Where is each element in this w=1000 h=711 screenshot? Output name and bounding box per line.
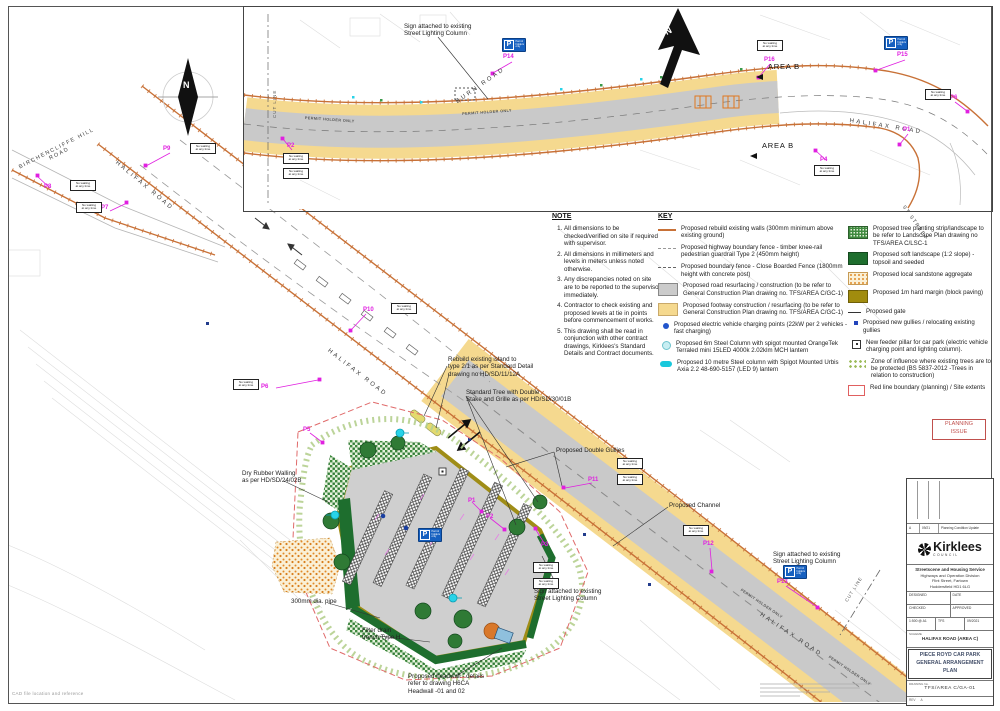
column-6m-swatch <box>662 341 671 350</box>
sandstone-area <box>272 538 340 594</box>
rev-label: REV <box>909 698 916 702</box>
annotation-walling: Dry Rubber Walling as per HD/SD/24/02B <box>242 470 302 485</box>
p-icon: P <box>886 38 896 48</box>
revision-row: A 09/21 Planning Condition Update <box>907 524 993 534</box>
red-line-swatch <box>848 385 865 396</box>
point-p10: P10 <box>363 307 374 314</box>
note-section: NOTE All dimensions to be checked/verifi… <box>552 213 662 361</box>
ev-charging-swatch <box>663 323 669 329</box>
ref-value: TFS <box>936 618 965 630</box>
note-item: Any discrepancies noted on site are to b… <box>564 276 662 299</box>
point-p14: P14 <box>503 54 514 61</box>
ev-charging-icon <box>404 526 409 531</box>
point-p9: P9 <box>163 146 170 153</box>
parking-sign: P Permit holders only <box>783 565 807 579</box>
file-reference-note: CAD file location and reference <box>12 691 84 696</box>
point-p11: P11 <box>588 477 598 484</box>
no-waiting-plate: No waiting at any time <box>814 165 840 176</box>
key-section: KEY Proposed rebuild existing walls (300… <box>658 213 992 401</box>
sandstone-swatch <box>848 272 868 285</box>
point-p4-inset: P4 <box>820 157 827 164</box>
key-column-left: KEY Proposed rebuild existing walls (300… <box>658 213 848 401</box>
area-b-arrow-icon <box>756 74 763 80</box>
annotation-headwall: Proposed headwall - details refer to dra… <box>408 673 484 695</box>
wall-swatch <box>658 229 676 231</box>
note-list: All dimensions to be checked/verified on… <box>552 225 662 358</box>
no-waiting-plate: No waiting at any time <box>70 180 96 191</box>
revision-area <box>907 479 993 524</box>
checked-label: CHECKED <box>907 605 951 617</box>
revision-date: 09/21 <box>920 524 939 533</box>
no-waiting-plate: No waiting at any time <box>617 474 643 485</box>
status-value: 09/2021 <box>965 618 993 630</box>
point-p6-inset: P6 <box>950 95 957 102</box>
rev-value: A <box>920 698 922 702</box>
no-waiting-plate: No waiting at any time <box>533 562 559 573</box>
gully-swatch <box>854 321 858 325</box>
address-block: Streetscene and Housing Service Highways… <box>907 565 993 592</box>
annotation-sign-right: Sign attached to existing Street Lightin… <box>773 551 840 566</box>
no-waiting-plate: No waiting at any time <box>391 303 417 314</box>
footway-swatch <box>658 303 678 316</box>
annotation-island: Rebuild existing island to type 2/1 as p… <box>448 356 533 378</box>
area-b-label: AREA B <box>762 142 794 151</box>
no-waiting-plate: No waiting at any time <box>76 202 102 213</box>
inset-area-b: AREA B <box>768 63 800 72</box>
no-waiting-plate: No waiting at any time <box>533 578 559 589</box>
compass-n-letter: N <box>183 80 190 91</box>
point-p12: P12 <box>703 541 714 548</box>
note-item: This drawing shall be read in conjunctio… <box>564 328 662 358</box>
point-p3: P3 <box>541 542 548 549</box>
kirklees-swirl-icon <box>918 543 931 556</box>
note-item: All dimensions in millimeters and levels… <box>564 251 662 274</box>
key-title: KEY <box>658 213 848 220</box>
zone-swatch <box>848 359 866 370</box>
feeder-pillar-swatch <box>852 340 861 349</box>
point-p16: P16 <box>764 57 775 64</box>
fields-row-2: CHECKED APPROVED <box>907 605 993 618</box>
fields-row-1: DESIGNED DATE <box>907 592 993 605</box>
note-item: All dimensions to be checked/verified on… <box>564 225 662 248</box>
scheme-value: HALIFAX ROAD (AREA C) <box>909 636 991 641</box>
soft-landscape-swatch <box>848 252 868 265</box>
designed-label: DESIGNED <box>907 592 951 604</box>
p-icon: P <box>504 40 514 50</box>
fence-swatch <box>658 267 676 268</box>
council-logo: Kirklees COUNCIL <box>907 534 993 565</box>
title-block: A 09/21 Planning Condition Update Kirkle… <box>906 478 994 706</box>
north-compass <box>158 58 218 136</box>
approved-label: APPROVED <box>951 605 994 617</box>
gate-swatch <box>848 312 861 313</box>
rev-footer: REV A <box>907 697 993 704</box>
no-waiting-plate: No waiting at any time <box>233 379 259 390</box>
scale-value: 1:500 @ A1 <box>907 618 936 630</box>
note-item: Contractor to check existing and propose… <box>564 302 662 325</box>
parking-sign: P Permit holders only <box>418 528 442 542</box>
inset-sign-note: Sign attached to existing Street Lightin… <box>404 23 471 38</box>
inset-plan <box>244 7 991 209</box>
dwg-no-value: TFS/AREA C/GA-01 <box>909 686 991 691</box>
parking-sign: P Permit holders only <box>502 38 526 52</box>
drawing-sheet: N N BURN ROAD BIRCHENCLIFFE HILL ROAD HA… <box>0 0 1000 711</box>
point-p2-inset: P2 <box>287 143 294 150</box>
point-p5: P5 <box>303 427 310 434</box>
annotation-sign-left: Sign attached to existing Street Lightin… <box>534 588 601 603</box>
note-title: NOTE <box>552 213 662 220</box>
annotation-tree: Standard Tree with Double Stake and Gril… <box>466 389 571 404</box>
point-p2: P2 <box>486 514 493 521</box>
point-p7: P7 <box>101 205 108 212</box>
point-p8: P8 <box>44 184 51 191</box>
point-p13: P13 <box>777 579 788 586</box>
point-p15: P15 <box>897 52 908 59</box>
tree-planting-swatch <box>848 226 868 239</box>
no-waiting-plate: No waiting at any time <box>283 153 309 164</box>
no-waiting-plate: No waiting at any time <box>683 525 709 536</box>
no-waiting-plate: No waiting at any time <box>283 168 309 179</box>
key-column-right: Proposed tree planting strip/landscape t… <box>848 213 992 401</box>
date-label: DATE <box>951 592 994 604</box>
annotation-channel: Proposed Channel <box>669 502 720 509</box>
road-swatch <box>658 283 678 296</box>
no-waiting-plate: No waiting at any time <box>190 143 216 154</box>
annotation-filter: Filter drain trench Type H <box>362 627 400 642</box>
drawing-title: PIECE ROYD CAR PARK GENERAL ARRANGEMENT … <box>908 649 992 679</box>
point-p1: P1 <box>468 498 475 505</box>
point-p6: P6 <box>261 384 268 391</box>
hard-margin-swatch <box>848 290 868 303</box>
point-p1-inset: P1 <box>903 127 910 134</box>
p-icon: P <box>785 567 795 577</box>
revision-letter: A <box>907 524 920 533</box>
annotation-gullies: Proposed Double Gullies <box>556 447 624 454</box>
annotation-pipe: 300mm dia. pipe <box>291 598 337 605</box>
inset-cut-line-label: CUT LINE <box>272 90 277 118</box>
fields-row-3: 1:500 @ A1 TFS 09/2021 <box>907 618 993 631</box>
dwg-no-row: DRAWING No. TFS/AREA C/GA-01 <box>907 680 993 697</box>
no-waiting-plate: No waiting at any time <box>617 458 643 469</box>
council-sub: COUNCIL <box>933 553 982 557</box>
guardrail-swatch <box>658 248 676 249</box>
area-b-arrow-icon <box>750 153 757 159</box>
council-name: Kirklees <box>933 541 982 554</box>
ev-charging-icon <box>381 514 386 519</box>
address-line-2: Huddersfield HD1 6LG <box>907 584 993 589</box>
scheme-row: SCHEME HALIFAX ROAD (AREA C) <box>907 631 993 648</box>
no-waiting-plate: No waiting at any time <box>925 89 951 100</box>
parking-sign: P Permit holders only <box>884 36 908 50</box>
planning-issue-stamp: PLANNING ISSUE <box>932 419 986 440</box>
revision-desc: Planning Condition Update <box>939 524 993 533</box>
no-waiting-plate: No waiting at any time <box>757 40 783 51</box>
p-icon: P <box>420 530 430 540</box>
column-10m-swatch <box>660 361 672 367</box>
